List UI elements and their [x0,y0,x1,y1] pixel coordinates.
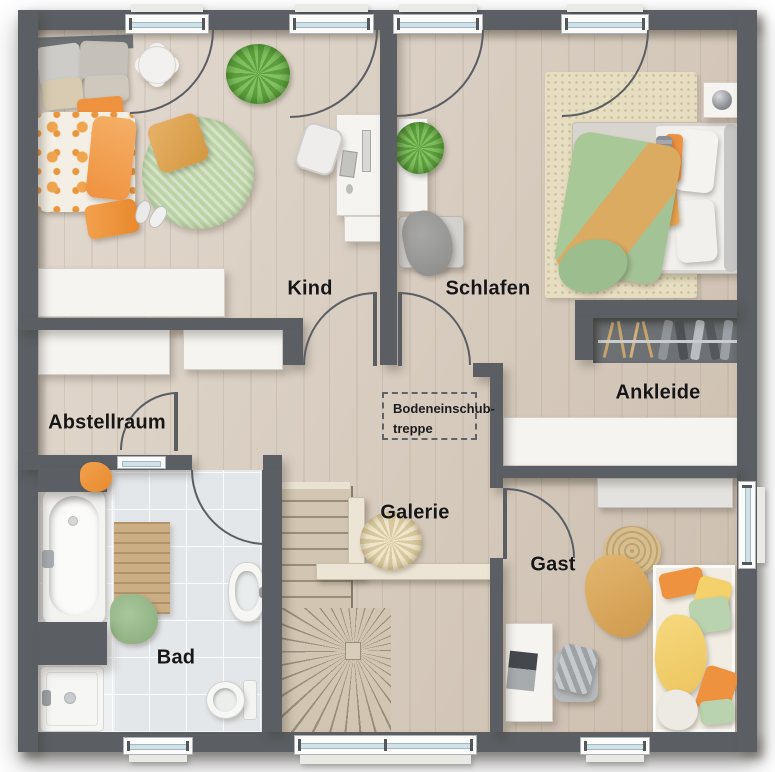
monitor [362,130,371,172]
window-sill [586,755,644,762]
window-sill [399,4,477,12]
door-leaf-gast [503,488,507,559]
door-leaf-abstellraum [174,392,178,451]
green-towel [110,594,158,644]
window-large [294,735,477,755]
window [580,737,650,755]
shower-head [42,690,51,706]
wall-kind-schlafen [380,30,397,365]
wall-hall-ankleide [473,363,503,377]
storage-cabinet [38,328,170,375]
interior-glass-panel [117,456,166,469]
wall-gast-west-lower [490,558,503,732]
tub-basin [49,496,99,616]
toilet [206,678,258,722]
wall-gast-west-upper [490,377,503,488]
window-sill [295,4,368,12]
floorplan-canvas: Kind Schlafen Ankleide Abstellraum Bad G… [0,0,775,772]
shower [40,666,106,734]
potted-plant [226,44,290,104]
tub-faucet [42,550,54,568]
wall-tub-niche-lower [38,622,107,665]
window-glass [128,744,188,750]
green-pillow [699,698,735,725]
laptop-keyboard [506,668,536,692]
headboard [724,124,738,272]
hall-cabinet [183,327,283,370]
window [123,737,193,755]
window-sill [129,755,187,762]
stair-top-nosing [282,482,350,489]
door-leaf-kind [373,292,377,366]
attic-stairs-note: Bodeneinschub- treppe [382,392,477,440]
window-sill [757,487,765,563]
wall-stub [575,318,593,360]
kind-bed [33,34,139,215]
gast-cabinet [597,478,733,508]
window-sill [131,4,203,12]
window-sill [567,4,643,12]
wall-stub [283,330,303,365]
toilet-tank [243,680,257,720]
room-label-kind: Kind [287,278,332,301]
toilet-seat [213,688,237,712]
double-bed [572,122,740,274]
window-glass [745,486,751,564]
window-glass [398,22,478,28]
window-sill [300,755,471,764]
staircase-winder [281,608,391,732]
wall-exterior-right [737,10,757,752]
window-glass [130,22,204,28]
bathtub [42,488,108,628]
window-glass [585,744,645,750]
orange-towel [80,462,112,492]
wall-bad-north-corner [263,455,282,470]
sink-bowl [235,571,259,611]
sphere-lamp [712,90,732,110]
attic-stairs-note-line1: Bodeneinschub- [393,399,475,419]
window [738,481,756,569]
orange-blanket-fold [85,115,137,201]
shower-drain [64,692,76,704]
mouse [346,184,353,194]
wardrobe [503,417,738,466]
wall-exterior-left [18,10,38,752]
room-label-galerie: Galerie [380,502,449,525]
laptop [506,651,538,692]
window-glass [122,461,161,467]
room-label-abstellraum: Abstellraum [48,412,166,435]
room-label-ankleide: Ankleide [616,382,701,405]
stair-newel [345,642,361,660]
staircase-straight-flight [281,486,353,610]
potted-plant [394,122,444,174]
pillow [674,199,718,264]
wall-schlafen-ankleide [575,300,737,318]
attic-stairs-note-line2: treppe [393,419,475,439]
kind-sideboard [38,268,225,317]
daybed [653,565,735,732]
room-label-schlafen: Schlafen [446,278,531,301]
door-leaf-schlafen [398,292,402,366]
desk-drawer-unit [344,216,382,242]
wall-ankleide-gast [503,466,737,478]
room-label-gast: Gast [530,554,575,577]
tub-drain [68,516,78,526]
wall-kind-south [18,318,303,330]
window-glass [566,22,644,28]
room-label-bad: Bad [157,647,195,670]
window-glass [294,22,369,28]
closet-rail [598,340,737,343]
